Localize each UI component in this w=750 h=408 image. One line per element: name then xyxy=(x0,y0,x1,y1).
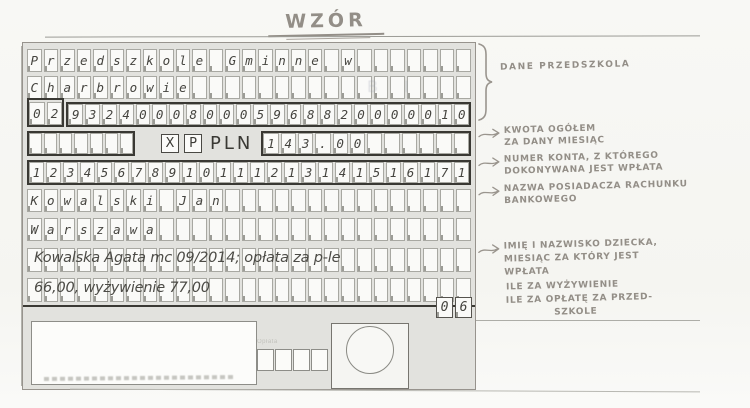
char-cell xyxy=(324,49,339,72)
char-cell: 3 xyxy=(301,162,316,183)
char-cell xyxy=(407,248,422,272)
char-cell xyxy=(374,218,389,241)
char-cell xyxy=(159,218,174,241)
char-cell xyxy=(423,218,438,241)
char-cell xyxy=(209,218,224,241)
char-cell: 4 xyxy=(281,133,296,154)
char-cell: o xyxy=(159,49,174,72)
w-option-box: X xyxy=(161,134,179,153)
stamp-box xyxy=(331,323,409,389)
p-option-box: P xyxy=(184,134,202,153)
char-cell xyxy=(291,218,306,241)
char-cell xyxy=(423,49,438,72)
char-cell: 4 xyxy=(119,104,134,125)
char-cell xyxy=(357,49,372,72)
char-cell: n xyxy=(275,49,290,72)
char-cell: 8 xyxy=(320,104,335,125)
form-row-payer-account: 12345678910111213141516171 xyxy=(27,160,471,185)
amount-cells: 143.00 xyxy=(263,133,469,154)
char-cell: s xyxy=(77,218,92,241)
char-cell: i xyxy=(258,49,273,72)
char-cell xyxy=(407,218,422,241)
char-cell: k xyxy=(126,189,141,212)
char-cell: 3 xyxy=(298,133,313,154)
right-rule-line xyxy=(476,320,700,321)
char-cell: . xyxy=(315,133,330,154)
char-cell: K xyxy=(27,189,42,212)
annotation-preschool-data: DANE PRZEDSZKOLA xyxy=(500,58,631,73)
char-cell: b xyxy=(93,76,108,99)
char-cell: 1 xyxy=(352,162,367,183)
char-cell xyxy=(402,133,417,154)
char-cell xyxy=(105,133,118,154)
char-cell: e xyxy=(77,49,92,72)
char-cell: a xyxy=(143,218,158,241)
scan-watermark: BI xyxy=(367,77,435,96)
char-cell: 2 xyxy=(267,162,282,183)
char-cell xyxy=(225,278,240,302)
char-cell: h xyxy=(44,76,59,99)
char-cell: C xyxy=(27,76,42,99)
char-cell xyxy=(374,189,389,212)
char-cell: 1 xyxy=(216,162,231,183)
char-cell: w xyxy=(126,218,141,241)
char-cell: e xyxy=(308,49,323,72)
amount-box: 143.00 xyxy=(261,131,471,156)
char-cell xyxy=(308,76,323,99)
char-cell xyxy=(258,218,273,241)
char-cell: 4 xyxy=(335,162,350,183)
form-divider-line xyxy=(23,305,475,307)
char-cell xyxy=(225,76,240,99)
char-cell: a xyxy=(44,218,59,241)
char-cell xyxy=(390,49,405,72)
char-cell xyxy=(456,218,471,241)
payment-title-text: Kowalska Agata mc 09/2014; opłata za p-l… xyxy=(34,250,340,266)
char-cell: J xyxy=(176,189,191,212)
char-cell: 2 xyxy=(46,162,61,183)
char-cell xyxy=(225,189,240,212)
char-cell: a xyxy=(77,189,92,212)
char-cell xyxy=(456,189,471,212)
char-cell: 6 xyxy=(403,162,418,183)
arrow-icon xyxy=(478,156,502,169)
char-cell xyxy=(176,218,191,241)
annotation-food-cost: ILE ZA WYŻYWIENIE xyxy=(506,279,619,294)
char-cell: 0 xyxy=(203,104,218,125)
char-cell: s xyxy=(110,189,125,212)
char-cell: 1 xyxy=(233,162,248,183)
char-cell: 1 xyxy=(420,162,435,183)
currency-label: PLN xyxy=(204,131,259,156)
fee-boxes xyxy=(257,349,328,371)
char-cell: 3 xyxy=(85,104,100,125)
char-cell: 2 xyxy=(102,104,117,125)
annotation-line: SZKOLE xyxy=(554,304,653,320)
account-prefix-box: 02 xyxy=(27,98,64,127)
page-title: WZÓR xyxy=(268,9,385,37)
char-cell: 4 xyxy=(80,162,95,183)
char-cell xyxy=(423,248,438,272)
char-cell: 3 xyxy=(63,162,78,183)
form-row-payment-title-2: 66,00, wyżywienie 77,00 xyxy=(27,278,471,302)
char-cell xyxy=(258,76,273,99)
char-cell: z xyxy=(60,49,75,72)
char-cell xyxy=(225,218,240,241)
char-cell: w xyxy=(143,76,158,99)
char-cell xyxy=(419,133,434,154)
char-cell xyxy=(423,189,438,212)
scanned-transfer-form-page: WZÓR PrzedszkoleGminnew Charbrowie BI 02… xyxy=(0,0,750,408)
char-cell: 0 xyxy=(387,104,402,125)
char-cell: w xyxy=(341,49,356,72)
form-row-payment-title-1: Kowalska Agata mc 09/2014; opłata za p-l… xyxy=(27,248,471,272)
top-rule-line xyxy=(45,35,700,37)
char-cell: 1 xyxy=(438,104,453,125)
empty-cells xyxy=(29,133,133,154)
payer-account-box: 12345678910111213141516171 xyxy=(27,160,471,185)
char-cell: 9 xyxy=(270,104,285,125)
char-cell xyxy=(308,218,323,241)
char-cell xyxy=(258,189,273,212)
char-cell xyxy=(440,49,455,72)
char-cell xyxy=(120,133,133,154)
annotation-line: DANE PRZEDSZKOLA xyxy=(500,58,631,73)
char-cell: r xyxy=(77,76,92,99)
char-cell: k xyxy=(143,49,158,72)
char-cell: z xyxy=(126,49,141,72)
char-cell: 7 xyxy=(131,162,146,183)
char-cell: 2 xyxy=(337,104,352,125)
form-row-recipient-1: PrzedszkoleGminnew xyxy=(27,49,471,72)
char-cell: l xyxy=(176,49,191,72)
char-cell xyxy=(209,76,224,99)
char-cell xyxy=(242,189,257,212)
payment-title-text-2: 66,00, wyżywienie 77,00 xyxy=(34,280,210,296)
char-cell: e xyxy=(176,76,191,99)
form-row-recipient-account: 02 932400080005968820000010 xyxy=(27,102,471,127)
char-cell: 6 xyxy=(114,162,129,183)
char-cell xyxy=(384,133,399,154)
char-cell: 8 xyxy=(186,104,201,125)
annotation-child-info: IMIĘ I NAZWISKO DZIECKA, MIESIĄC ZA KTÓR… xyxy=(478,237,659,281)
char-cell xyxy=(341,218,356,241)
page-code-box: 0 6 xyxy=(436,297,472,318)
char-cell xyxy=(440,218,455,241)
char-cell: 1 xyxy=(182,162,197,183)
annotation-source-account: NUMER KONTA, Z KTÓREGO DOKONYWANA JEST W… xyxy=(478,150,664,179)
char-cell xyxy=(209,278,224,302)
char-cell: 0 xyxy=(350,133,365,154)
char-cell: 0 xyxy=(370,104,385,125)
char-cell xyxy=(324,218,339,241)
char-cell xyxy=(407,189,422,212)
char-cell xyxy=(390,218,405,241)
char-cell xyxy=(275,189,290,212)
char-cell: 1 xyxy=(250,162,265,183)
char-cell xyxy=(44,133,57,154)
char-cell: o xyxy=(44,189,59,212)
char-cell xyxy=(440,189,455,212)
account-number-cells: 932400080005968820000010 xyxy=(68,104,469,125)
char-cell xyxy=(357,248,372,272)
char-cell: l xyxy=(93,189,108,212)
char-cell: 5 xyxy=(97,162,112,183)
char-cell xyxy=(357,278,372,302)
char-cell: 2 xyxy=(47,102,63,125)
char-cell xyxy=(440,76,455,99)
char-cell xyxy=(341,189,356,212)
fee-area: Opłata xyxy=(257,339,328,371)
char-cell: z xyxy=(93,218,108,241)
char-cell: r xyxy=(44,49,59,72)
char-cell: 5 xyxy=(253,104,268,125)
payer-name-cells: KowalskiJan xyxy=(27,189,471,212)
brace-icon xyxy=(476,43,493,121)
signature-area xyxy=(31,321,257,385)
char-cell: i xyxy=(143,189,158,212)
transfer-form: PrzedszkoleGminnew Charbrowie BI 02 9324… xyxy=(22,42,476,390)
char-cell xyxy=(74,133,87,154)
char-cell: 0 xyxy=(169,104,184,125)
char-cell xyxy=(90,133,103,154)
char-cell xyxy=(308,278,323,302)
form-row-payer-city: Warszawa xyxy=(27,218,471,241)
char-cell: o xyxy=(126,76,141,99)
char-cell: P xyxy=(27,49,42,72)
char-cell xyxy=(456,76,471,99)
fee-cell xyxy=(275,349,292,371)
char-cell xyxy=(275,218,290,241)
char-cell xyxy=(374,278,389,302)
char-cell xyxy=(440,248,455,272)
char-cell xyxy=(242,76,257,99)
char-cell xyxy=(407,278,422,302)
char-cell xyxy=(59,133,72,154)
char-cell xyxy=(456,248,471,272)
char-cell: 0 xyxy=(354,104,369,125)
payer-city-cells: Warszawa xyxy=(27,218,471,241)
char-cell: 0 xyxy=(199,162,214,183)
char-cell: 0 xyxy=(136,104,151,125)
form-row-amount: X P PLN 143.00 xyxy=(27,131,471,156)
char-cell: 0 xyxy=(454,104,469,125)
char-cell: G xyxy=(225,49,240,72)
char-cell: 0 xyxy=(333,133,348,154)
empty-comb-box xyxy=(27,131,135,156)
fee-cell xyxy=(293,349,310,371)
char-cell: 0 xyxy=(404,104,419,125)
annotation-line: ZA DANY MIESIĄC xyxy=(504,134,605,149)
char-cell xyxy=(324,189,339,212)
char-cell xyxy=(291,76,306,99)
char-cell xyxy=(275,76,290,99)
char-cell: 6 xyxy=(287,104,302,125)
char-cell xyxy=(454,133,469,154)
char-cell: 0 xyxy=(29,102,45,125)
char-cell: a xyxy=(192,189,207,212)
char-cell xyxy=(275,278,290,302)
char-cell: a xyxy=(60,76,75,99)
payer-account-cells: 12345678910111213141516171 xyxy=(29,162,469,183)
annotation-line: ILE ZA WYŻYWIENIE xyxy=(506,279,619,294)
recipient-name-field: PrzedszkoleGminnew xyxy=(27,49,471,72)
char-cell: 1 xyxy=(29,162,44,183)
char-cell: 1 xyxy=(318,162,333,183)
char-cell: 8 xyxy=(148,162,163,183)
char-cell: 9 xyxy=(68,104,83,125)
char-cell xyxy=(436,133,451,154)
char-cell: 0 xyxy=(421,104,436,125)
char-cell xyxy=(258,278,273,302)
char-cell xyxy=(29,133,42,154)
account-number-box: 932400080005968820000010 xyxy=(66,102,471,127)
char-cell: 5 xyxy=(369,162,384,183)
char-cell: 0 xyxy=(219,104,234,125)
char-cell xyxy=(390,189,405,212)
char-cell: r xyxy=(60,218,75,241)
char-cell: 1 xyxy=(454,162,469,183)
arrow-icon xyxy=(478,127,502,140)
char-cell xyxy=(390,248,405,272)
fee-label: Opłata xyxy=(257,339,328,345)
page-code-digit-2: 6 xyxy=(455,297,472,318)
arrow-icon xyxy=(478,243,502,256)
char-cell xyxy=(242,218,257,241)
char-cell xyxy=(407,49,422,72)
char-cell: 9 xyxy=(165,162,180,183)
annotation-total-amount: KWOTA OGÓŁEM ZA DANY MIESIĄC xyxy=(478,122,605,149)
annotation-line: WPŁATA xyxy=(504,263,658,280)
char-cell: 7 xyxy=(437,162,452,183)
char-cell xyxy=(308,189,323,212)
char-cell: s xyxy=(110,49,125,72)
char-cell xyxy=(357,218,372,241)
arrow-icon xyxy=(478,185,502,198)
char-cell xyxy=(291,278,306,302)
char-cell: 8 xyxy=(303,104,318,125)
char-cell: a xyxy=(110,218,125,241)
char-cell xyxy=(341,248,356,272)
annotation-preschool-fee: ILE ZA OPŁATĘ ZA PRZED- SZKOLE xyxy=(506,291,654,321)
char-cell xyxy=(456,49,471,72)
char-cell: 0 xyxy=(236,104,251,125)
char-cell xyxy=(357,189,372,212)
char-cell xyxy=(374,248,389,272)
char-cell: w xyxy=(60,189,75,212)
account-prefix-cells: 02 xyxy=(29,102,62,125)
char-cell xyxy=(324,76,339,99)
char-cell: 0 xyxy=(152,104,167,125)
char-cell: r xyxy=(110,76,125,99)
char-cell xyxy=(390,278,405,302)
char-cell xyxy=(374,49,389,72)
char-cell xyxy=(341,278,356,302)
char-cell: W xyxy=(27,218,42,241)
char-cell xyxy=(242,278,257,302)
char-cell: d xyxy=(93,49,108,72)
char-cell xyxy=(192,76,207,99)
char-cell: 1 xyxy=(386,162,401,183)
char-cell: 1 xyxy=(263,133,278,154)
char-cell xyxy=(209,49,224,72)
form-row-payer-name: KowalskiJan xyxy=(27,189,471,212)
char-cell: 1 xyxy=(284,162,299,183)
char-cell: e xyxy=(192,49,207,72)
char-cell xyxy=(192,218,207,241)
char-cell xyxy=(341,76,356,99)
form-row-recipient-2: Charbrowie BI xyxy=(27,76,471,99)
bottom-edge-line xyxy=(70,389,700,393)
char-cell: n xyxy=(291,49,306,72)
char-cell xyxy=(367,133,382,154)
char-cell xyxy=(291,189,306,212)
fee-cell xyxy=(311,349,328,371)
annotation-account-holder: NAZWA POSIADACZA RACHUNKU BANKOWEGO xyxy=(478,178,688,207)
char-cell xyxy=(324,278,339,302)
fee-cell xyxy=(257,349,274,371)
char-cell: n xyxy=(209,189,224,212)
signature-caption-smudge xyxy=(44,375,236,381)
char-cell: i xyxy=(159,76,174,99)
char-cell: m xyxy=(242,49,257,72)
page-code-digit-1: 0 xyxy=(436,297,453,318)
stamp-circle xyxy=(346,326,394,374)
char-cell xyxy=(159,189,174,212)
